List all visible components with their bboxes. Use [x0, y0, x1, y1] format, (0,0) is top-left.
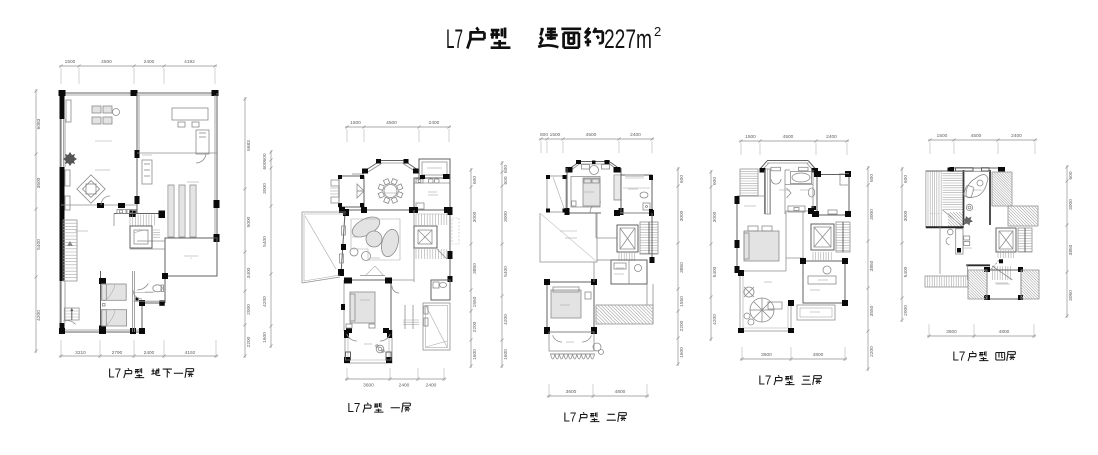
svg-text:2400: 2400: [826, 134, 837, 140]
svg-text:5400: 5400: [503, 266, 509, 277]
svg-text:3000: 3000: [903, 210, 909, 221]
svg-text:1600: 1600: [503, 349, 509, 360]
svg-text:L7: L7: [446, 24, 463, 54]
svg-text:2000: 2000: [246, 304, 252, 315]
svg-text:3000: 3000: [503, 211, 509, 222]
svg-text:600: 600: [540, 132, 548, 138]
svg-text:L7: L7: [758, 374, 771, 388]
svg-text:3210: 3210: [75, 350, 86, 356]
svg-text:3000: 3000: [1068, 199, 1074, 210]
svg-text:5000: 5000: [246, 216, 252, 227]
svg-text:1600: 1600: [262, 332, 268, 343]
svg-text:4200: 4200: [262, 296, 268, 307]
svg-text:6083: 6083: [36, 118, 42, 129]
svg-text:4800: 4800: [615, 389, 626, 395]
svg-text:3400: 3400: [246, 267, 252, 278]
svg-text:3600: 3600: [566, 389, 577, 395]
svg-text:L7: L7: [108, 367, 121, 381]
svg-text:1500: 1500: [745, 134, 756, 140]
svg-text:4200: 4200: [36, 310, 42, 321]
svg-text:600: 600: [712, 177, 718, 185]
svg-text:5400: 5400: [262, 236, 268, 247]
svg-text:3850: 3850: [679, 262, 685, 273]
svg-text:4500: 4500: [586, 132, 597, 138]
svg-text:600: 600: [903, 175, 909, 183]
svg-text:4800: 4800: [813, 352, 824, 358]
svg-text:L7: L7: [563, 411, 576, 425]
svg-text:1550: 1550: [679, 296, 685, 307]
svg-text:2400: 2400: [429, 120, 440, 126]
svg-text:2: 2: [654, 24, 661, 39]
svg-text:3600: 3600: [761, 352, 772, 358]
svg-text:3000: 3000: [679, 210, 685, 221]
svg-text:600: 600: [1068, 171, 1074, 179]
svg-text:3600: 3600: [363, 383, 374, 389]
svg-text:1600: 1600: [472, 349, 478, 360]
svg-text:600: 600: [472, 176, 478, 184]
svg-text:1500: 1500: [937, 133, 948, 139]
svg-text:600: 600: [503, 176, 509, 184]
svg-text:4500: 4500: [971, 133, 982, 139]
svg-text:1550: 1550: [472, 296, 478, 307]
svg-text:3000: 3000: [472, 211, 478, 222]
svg-text:6683: 6683: [246, 140, 252, 151]
svg-text:227m: 227m: [604, 24, 652, 54]
svg-text:2200: 2200: [869, 346, 875, 357]
svg-text:3850: 3850: [869, 260, 875, 271]
svg-text:4500: 4500: [386, 120, 397, 126]
svg-text:1600: 1600: [679, 347, 685, 358]
svg-text:2400: 2400: [399, 383, 410, 389]
svg-text:1500: 1500: [65, 59, 76, 65]
svg-text:2000: 2000: [903, 305, 909, 316]
svg-text:L7: L7: [347, 401, 360, 415]
svg-text:2400: 2400: [630, 132, 641, 138]
svg-text:2400: 2400: [426, 383, 437, 389]
svg-text:L7: L7: [952, 350, 965, 364]
svg-text:3550: 3550: [869, 305, 875, 316]
svg-text:4192: 4192: [184, 59, 195, 65]
svg-text:2400: 2400: [144, 59, 155, 65]
svg-text:2200: 2200: [246, 336, 252, 347]
svg-text:4500: 4500: [101, 59, 112, 65]
svg-text:3050: 3050: [1068, 290, 1074, 301]
svg-text:2400: 2400: [144, 350, 155, 356]
svg-text:4200: 4200: [712, 314, 718, 325]
svg-text:600: 600: [503, 165, 509, 173]
svg-text:3600: 3600: [946, 329, 957, 335]
svg-text:4800: 4800: [999, 329, 1010, 335]
svg-text:5400: 5400: [903, 266, 909, 277]
svg-text:3850: 3850: [1068, 244, 1074, 255]
svg-text:3600: 3600: [36, 177, 42, 188]
svg-text:1500: 1500: [550, 132, 561, 138]
svg-text:4192: 4192: [185, 350, 196, 356]
svg-text:1500: 1500: [350, 120, 361, 126]
svg-text:600: 600: [869, 174, 875, 182]
svg-text:3000: 3000: [869, 209, 875, 220]
svg-text:600: 600: [262, 161, 268, 169]
svg-text:2200: 2200: [472, 321, 478, 332]
svg-text:2200: 2200: [679, 320, 685, 331]
svg-text:5400: 5400: [36, 239, 42, 250]
svg-text:2400: 2400: [1011, 133, 1022, 139]
svg-text:600: 600: [262, 153, 268, 161]
svg-text:▪: ▪: [190, 256, 191, 260]
svg-text:4200: 4200: [503, 314, 509, 325]
svg-text:4500: 4500: [783, 134, 794, 140]
svg-text:3850: 3850: [472, 263, 478, 274]
svg-text:2790: 2790: [112, 350, 123, 356]
svg-text:3000: 3000: [712, 211, 718, 222]
svg-text:3000: 3000: [262, 183, 268, 194]
svg-text:5400: 5400: [712, 266, 718, 277]
svg-text:600: 600: [679, 175, 685, 183]
